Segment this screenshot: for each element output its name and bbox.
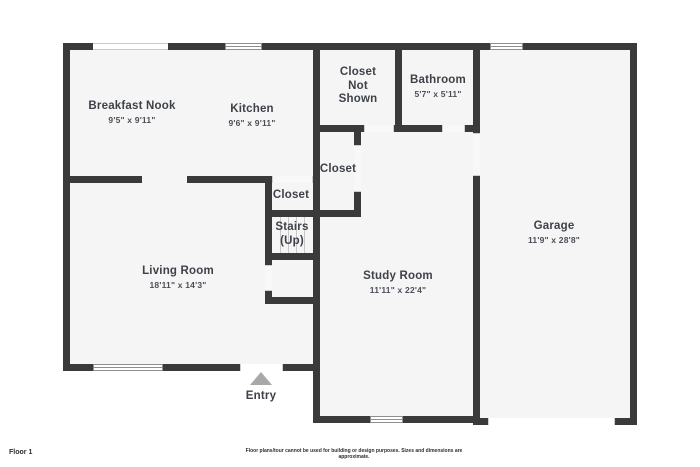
room-label-bathroom: Bathroom 5'7" x 5'11" [410, 74, 466, 99]
door-opening-bathroom [442, 125, 465, 132]
room-name: Closet [320, 163, 356, 176]
wall-right [630, 43, 637, 425]
room-dims: 18'11" x 14'3" [142, 280, 214, 290]
room-label-breakfast-nook: Breakfast Nook 9'5" x 9'11" [88, 100, 175, 125]
wall-garage-left [473, 176, 480, 425]
wall-bathroom-bottom [394, 125, 442, 132]
wall-stairs-left [265, 291, 272, 304]
door-opening-garage-study [473, 133, 480, 176]
door-opening-closet-kitchen [272, 176, 313, 183]
wall-garage-bottom [615, 418, 637, 425]
wall-garage-left [473, 43, 480, 133]
wall-top [523, 43, 637, 50]
room-label-study-room: Study Room 11'11" x 22'4" [363, 270, 433, 295]
wall-closet-right [354, 125, 361, 145]
room-label-closet-not-shown: Closet Not Shown [331, 66, 385, 107]
floor-plan-canvas: Breakfast Nook 9'5" x 9'11" Kitchen 9'6"… [0, 0, 700, 467]
window [225, 43, 262, 50]
wall-closet-right [354, 192, 361, 216]
floor-number-label: Floor 1 [9, 449, 32, 456]
window [490, 43, 523, 50]
window [93, 43, 168, 50]
entry-door-opening [240, 364, 283, 371]
room-label-living-room: Living Room 18'11" x 14'3" [142, 265, 214, 290]
room-dims: 11'11" x 22'4" [363, 285, 433, 295]
window [370, 416, 403, 423]
room-label-entry: Entry [246, 390, 276, 403]
room-name: Stairs (Up) [268, 220, 316, 248]
wall-vestibule-bottom [265, 297, 320, 304]
room-name: Closet Not Shown [331, 66, 385, 107]
wall-stairs-bottom [265, 253, 318, 260]
garage-door-opening [488, 418, 615, 425]
door-opening-stairs [265, 265, 272, 291]
disclaimer-text: Floor plans/tour cannot be used for buil… [234, 448, 474, 460]
room-label-stairs: Stairs (Up) [268, 220, 316, 248]
wall-nook-bottom [63, 176, 142, 183]
wall-bathroom-left [395, 50, 402, 125]
door-opening-closetns [364, 125, 394, 132]
room-name: Living Room [142, 265, 214, 278]
wall-living-bottom [163, 364, 240, 371]
room-name: Closet [273, 189, 309, 202]
wall-kitchen-bottom [187, 176, 272, 183]
room-dims: 11'9" x 28'8" [528, 235, 580, 245]
wall-study-bottom [403, 416, 480, 423]
wall-top [262, 43, 490, 50]
wall-top [168, 43, 225, 50]
room-label-garage: Garage 11'9" x 28'8" [528, 220, 580, 245]
wall-living-bottom [63, 364, 93, 371]
wall-study-bottom [313, 416, 370, 423]
room-name: Kitchen [228, 103, 275, 116]
room-label-closet-upper: Closet [320, 163, 356, 176]
room-name: Entry [246, 390, 276, 403]
room-name: Garage [528, 220, 580, 233]
room-dims: 9'5" x 9'11" [88, 115, 175, 125]
floor-area-left-wing [63, 43, 321, 370]
window [93, 364, 163, 371]
room-label-kitchen: Kitchen 9'6" x 9'11" [228, 103, 275, 128]
room-dims: 9'6" x 9'11" [228, 118, 275, 128]
room-name: Study Room [363, 270, 433, 283]
room-name: Bathroom [410, 74, 466, 87]
room-label-closet-lower: Closet [273, 189, 309, 202]
wall-left [63, 43, 70, 371]
room-dims: 5'7" x 5'11" [410, 89, 466, 99]
room-name: Breakfast Nook [88, 100, 175, 113]
entry-direction-icon [250, 372, 272, 385]
